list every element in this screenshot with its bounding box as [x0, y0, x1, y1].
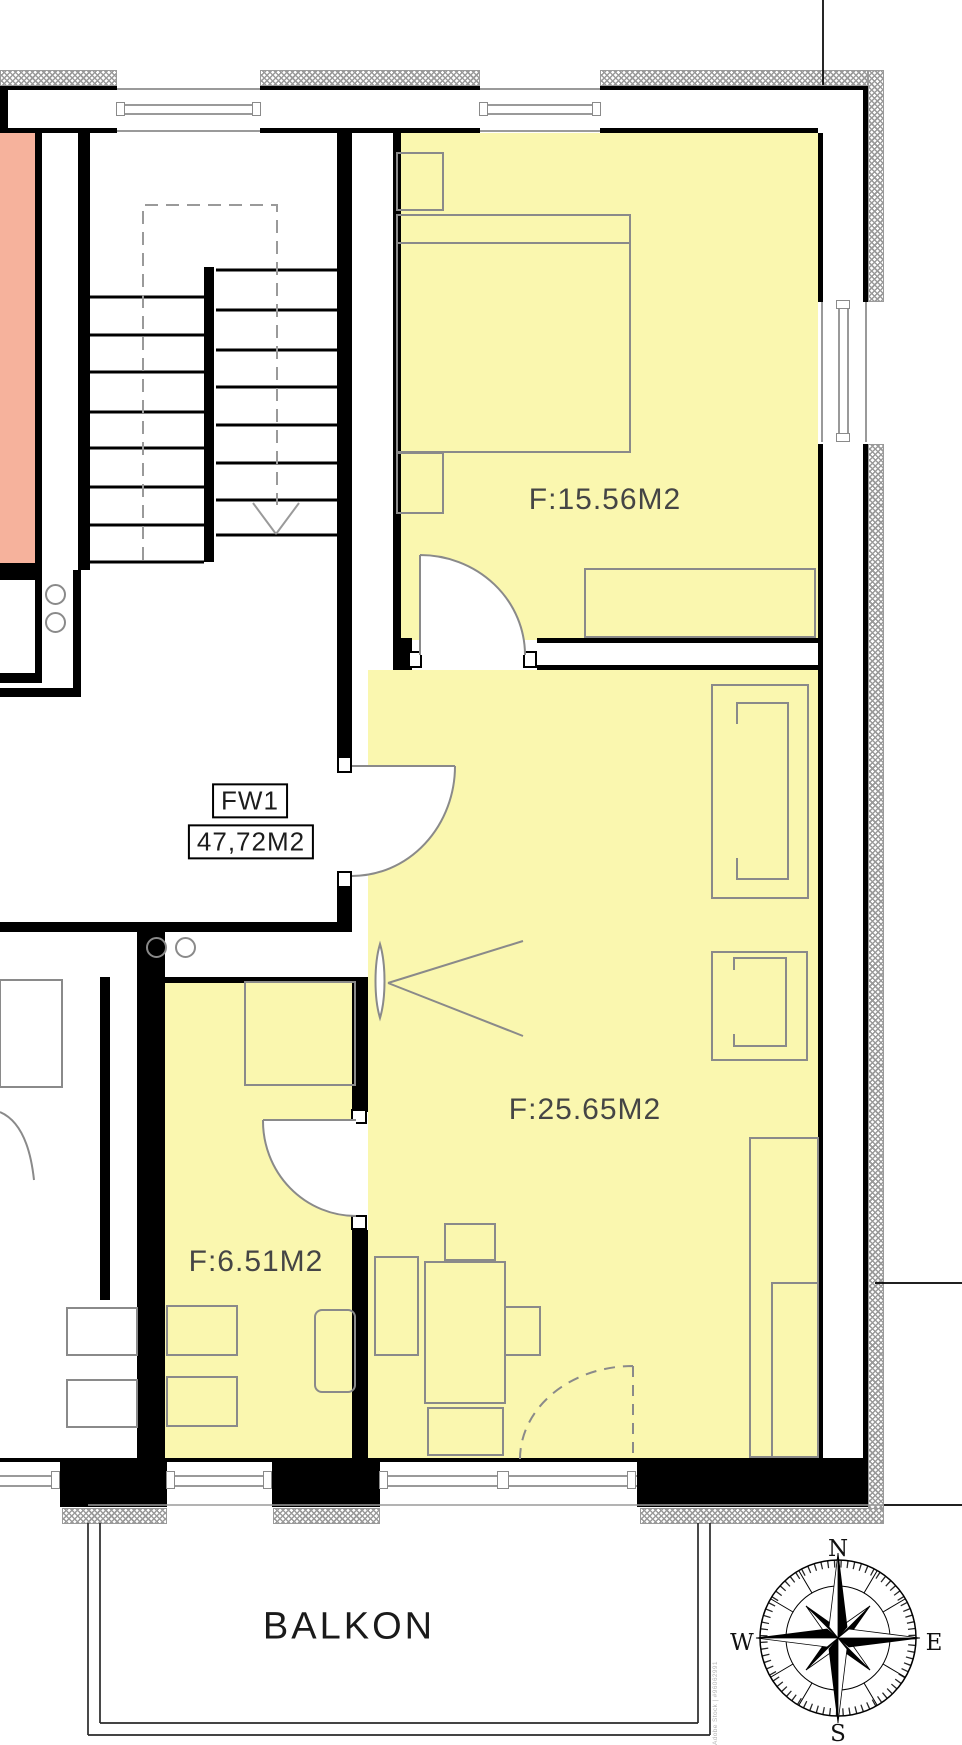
- compass-letter-south: S: [830, 1721, 846, 1745]
- nightstand: [397, 153, 443, 210]
- door-kitchen: [263, 1120, 356, 1216]
- reference-lines: [823, 0, 962, 1505]
- door-entry: [352, 766, 455, 876]
- neighbor-furniture: [0, 980, 137, 1427]
- bed: [397, 153, 630, 513]
- wardrobe: [0, 980, 62, 1087]
- stock-watermark: Adobe Stock | #96062991: [712, 1661, 719, 1745]
- sofa: [712, 685, 808, 898]
- label-kitchen-area: F:6.51M2: [189, 1245, 324, 1279]
- door-bedroom: [420, 555, 525, 655]
- chair: [445, 1224, 495, 1260]
- staircase: [90, 267, 338, 562]
- dining-table: [425, 1262, 505, 1403]
- label-bedroom-area: F:15.56M2: [529, 483, 681, 517]
- counter: [167, 1377, 237, 1426]
- stair-down-arrow: [253, 503, 299, 534]
- floor-plan-canvas: F:15.56M2 F:25.65M2 F:6.51M2 FW1 47,72M2…: [0, 0, 962, 1745]
- door-balcony-dashed: [520, 1366, 633, 1459]
- unit-id-label: FW1: [212, 783, 288, 818]
- sideboard-bedroom: [585, 569, 815, 637]
- floorplan-drawing: [0, 0, 962, 1745]
- dining-set: [375, 1224, 540, 1455]
- neighbor-door-arc: [0, 1112, 34, 1180]
- nightstand: [397, 453, 443, 513]
- compass-letter-east: E: [926, 1630, 943, 1656]
- opening-direction-arrow: [376, 941, 524, 1036]
- sink: [315, 1310, 355, 1392]
- compass-rose: [756, 1553, 920, 1723]
- label-living-area: F:25.65M2: [509, 1093, 661, 1127]
- shaft-pipes: [46, 585, 195, 957]
- compass-star: [756, 1553, 920, 1723]
- chair: [375, 1257, 418, 1355]
- stair-walking-line: [143, 205, 299, 560]
- compass-letter-north: N: [828, 1536, 848, 1562]
- shelf-unit: [750, 1138, 818, 1457]
- chair: [428, 1408, 503, 1455]
- unit-total-area-label: 47,72M2: [188, 824, 314, 859]
- chair: [505, 1307, 540, 1355]
- counter: [167, 1306, 237, 1355]
- compass-letter-west: W: [730, 1630, 754, 1656]
- stove-counter: [245, 982, 355, 1085]
- balcony-label: BALKON: [263, 1606, 435, 1649]
- armchair: [712, 952, 807, 1060]
